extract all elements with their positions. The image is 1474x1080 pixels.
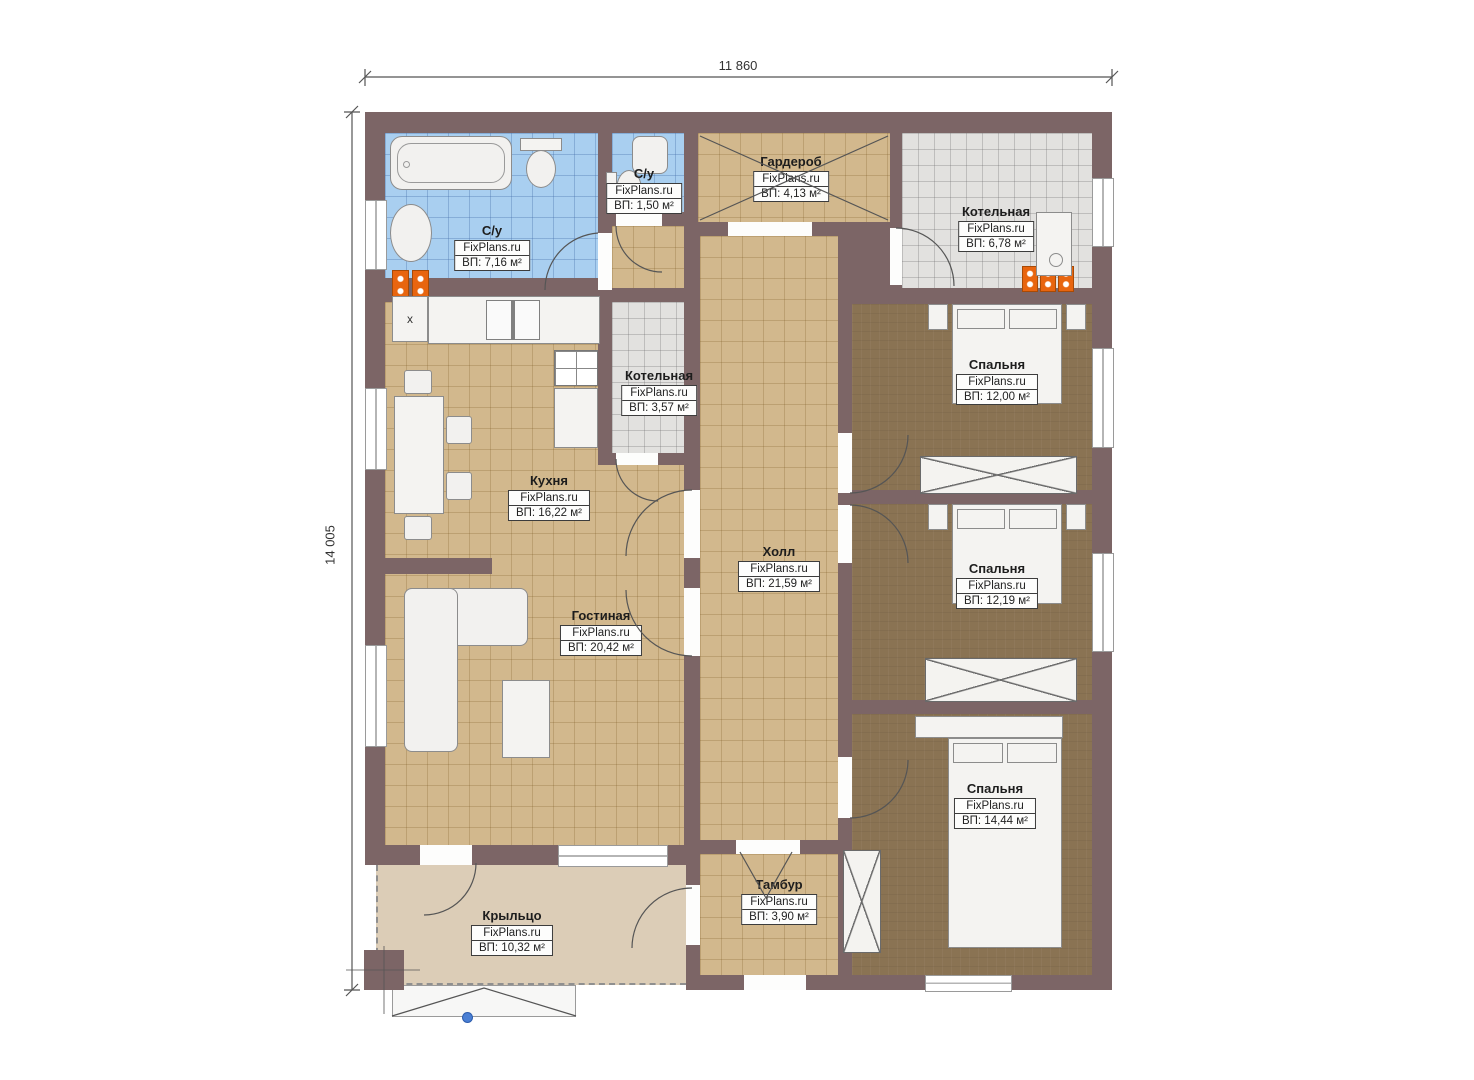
door-gap-tambur-porch	[686, 885, 700, 945]
room-name: Крыльцо	[471, 908, 553, 923]
kitchen-sink	[486, 300, 540, 340]
door-gap-wardrobe	[728, 222, 812, 236]
watermark: FixPlans.ru	[622, 386, 696, 400]
room-label-boiler-right: Котельная FixPlans.ru ВП: 6,78 м²	[958, 204, 1034, 252]
watermark: FixPlans.ru	[509, 491, 589, 505]
room-name: Холл	[738, 544, 820, 559]
toilet-main-bowl	[526, 150, 556, 188]
corner-column	[364, 950, 404, 990]
window-bedroom-3	[925, 975, 1012, 992]
washing-machine: x	[392, 296, 428, 342]
room-floor-hall-upper-patch	[612, 226, 684, 288]
room-name: Тамбур	[741, 877, 817, 892]
watermark: FixPlans.ru	[472, 926, 552, 940]
chair	[446, 472, 472, 500]
coffee-table	[502, 680, 550, 758]
washing-machine-mark: x	[407, 312, 413, 326]
room-label-boiler-mid: Котельная FixPlans.ru ВП: 3,57 м²	[621, 368, 697, 416]
door-gap-bathroom-small	[616, 212, 662, 226]
porch-stairs	[392, 985, 576, 1017]
room-floor-hall	[700, 236, 838, 840]
room-label-tambur: Тамбур FixPlans.ru ВП: 3,90 м²	[741, 877, 817, 925]
stove	[554, 350, 598, 386]
dimension-width: 11 860	[719, 58, 758, 73]
door-gap-living	[684, 588, 700, 656]
boiler-unit	[1036, 212, 1072, 276]
dimension-slashes-left	[346, 106, 358, 996]
room-name: Котельная	[958, 204, 1034, 219]
room-label-wardrobe: Гардероб FixPlans.ru ВП: 4,13 м²	[753, 154, 829, 202]
floor-plan-canvas: x С/у FixPlans.ru ВП: 7	[0, 0, 1474, 1080]
room-name: Котельная	[621, 368, 697, 383]
room-label-hall: Холл FixPlans.ru ВП: 21,59 м²	[738, 544, 820, 592]
room-name: Спальня	[956, 561, 1038, 576]
sofa-vertical	[404, 588, 458, 752]
wall-boiler-mid-left	[598, 288, 612, 465]
nightstand	[1066, 304, 1086, 330]
room-area: ВП: 3,57 м²	[622, 400, 696, 415]
room-label-bedroom-3: Спальня FixPlans.ru ВП: 14,44 м²	[954, 781, 1036, 829]
room-area: ВП: 1,50 м²	[607, 198, 681, 213]
room-label-kitchen: Кухня FixPlans.ru ВП: 16,22 м²	[508, 473, 590, 521]
watermark: FixPlans.ru	[959, 222, 1033, 236]
nightstand	[1066, 504, 1086, 530]
room-area: ВП: 7,16 м²	[455, 255, 529, 270]
door-gap-entrance	[744, 975, 806, 990]
room-name: Гардероб	[753, 154, 829, 169]
dimension-height: 14 005	[323, 525, 338, 565]
window-kitchen	[365, 388, 387, 470]
window-living-left	[365, 645, 387, 747]
door-gap-living-porch	[420, 845, 472, 865]
door-gap-boiler-right	[890, 228, 902, 285]
room-area: ВП: 4,13 м²	[754, 186, 828, 201]
chair	[404, 516, 432, 540]
room-label-bathroom-main: С/у FixPlans.ru ВП: 7,16 м²	[454, 223, 530, 271]
door-gap-bedroom-1	[838, 433, 852, 493]
window-bedroom-1	[1092, 348, 1114, 448]
room-area: ВП: 14,44 м²	[955, 813, 1035, 828]
wall-boiler-mid-top	[612, 288, 684, 302]
closet-bedroom-3	[843, 850, 881, 953]
nightstand	[928, 504, 948, 530]
room-label-bedroom-1: Спальня FixPlans.ru ВП: 12,00 м²	[956, 357, 1038, 405]
dining-table	[394, 396, 444, 514]
room-name: Спальня	[956, 357, 1038, 372]
room-name: Спальня	[954, 781, 1036, 796]
wardrobe-closet-2	[925, 658, 1077, 702]
room-label-living: Гостиная FixPlans.ru ВП: 20,42 м²	[560, 608, 642, 656]
bed-3-headboard	[915, 716, 1063, 738]
door-gap-bedroom-3	[838, 757, 852, 818]
window-bathroom	[365, 200, 387, 270]
watermark: FixPlans.ru	[561, 626, 641, 640]
dimension-ticks-left	[344, 112, 360, 990]
wall-kitchen-living	[385, 558, 492, 574]
watermark: FixPlans.ru	[739, 562, 819, 576]
entry-marker-dot	[462, 1012, 473, 1023]
watermark: FixPlans.ru	[455, 241, 529, 255]
chair	[404, 370, 432, 394]
room-area: ВП: 10,32 м²	[472, 940, 552, 955]
watermark: FixPlans.ru	[957, 579, 1037, 593]
room-area: ВП: 12,19 м²	[957, 593, 1037, 608]
room-area: ВП: 16,22 м²	[509, 505, 589, 520]
watermark: FixPlans.ru	[957, 375, 1037, 389]
watermark: FixPlans.ru	[742, 895, 816, 909]
window-living-bottom	[558, 845, 668, 867]
watermark: FixPlans.ru	[754, 172, 828, 186]
room-name: Гостиная	[560, 608, 642, 623]
room-area: ВП: 20,42 м²	[561, 640, 641, 655]
bed-3	[948, 738, 1062, 948]
bathtub	[390, 136, 512, 190]
watermark: FixPlans.ru	[607, 184, 681, 198]
room-label-bathroom-small: С/у FixPlans.ru ВП: 1,50 м²	[606, 166, 682, 214]
room-name: С/у	[606, 166, 682, 181]
window-boiler-right	[1092, 178, 1114, 247]
room-name: Кухня	[508, 473, 590, 488]
chair	[446, 416, 472, 444]
room-area: ВП: 21,59 м²	[739, 576, 819, 591]
door-gap-bedroom-2	[838, 505, 852, 563]
room-name: С/у	[454, 223, 530, 238]
door-gap-kitchen	[684, 490, 700, 558]
sink-bathroom-main	[390, 204, 432, 262]
room-label-bedroom-2: Спальня FixPlans.ru ВП: 12,19 м²	[956, 561, 1038, 609]
watermark: FixPlans.ru	[955, 799, 1035, 813]
nightstand	[928, 304, 948, 330]
door-gap-boiler-mid	[616, 453, 658, 465]
window-bedroom-2	[1092, 553, 1114, 652]
wardrobe-closet-1	[920, 456, 1077, 494]
room-area: ВП: 3,90 м²	[742, 909, 816, 924]
door-gap-bathroom-main	[598, 233, 612, 290]
kitchen-cabinet	[554, 388, 598, 448]
room-area: ВП: 6,78 м²	[959, 236, 1033, 251]
door-gap-tambur-hall	[736, 840, 800, 854]
room-label-porch: Крыльцо FixPlans.ru ВП: 10,32 м²	[471, 908, 553, 956]
room-area: ВП: 12,00 м²	[957, 389, 1037, 404]
